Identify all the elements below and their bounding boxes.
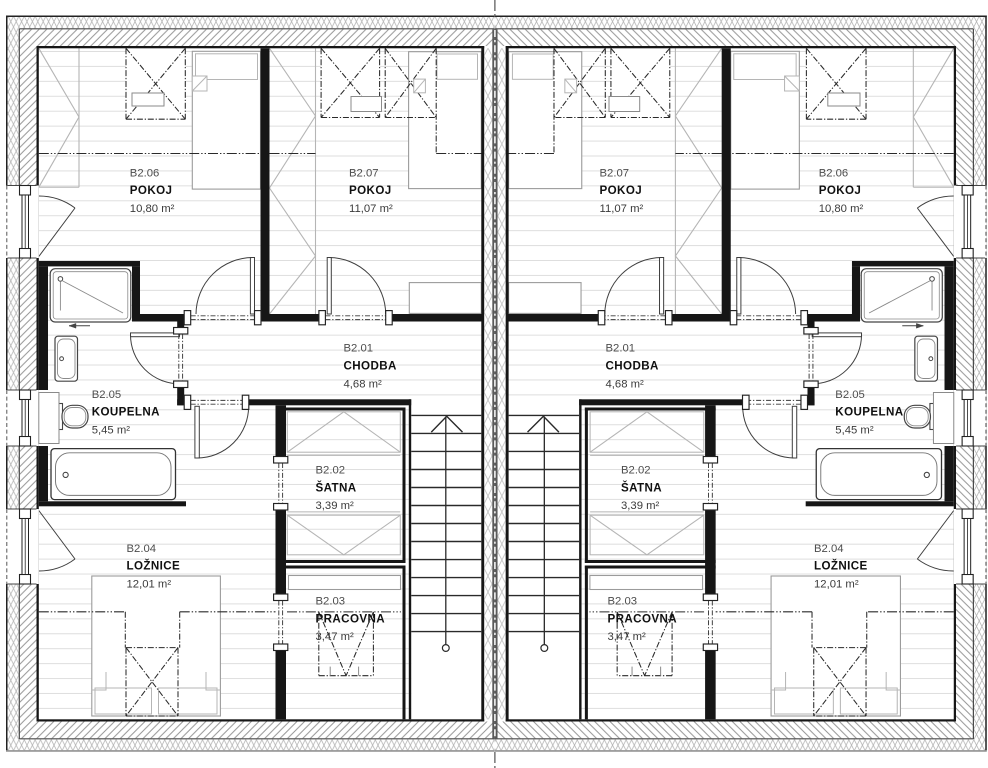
- svg-text:KOUPELNA: KOUPELNA: [835, 406, 903, 419]
- svg-text:PRACOVNA: PRACOVNA: [316, 612, 386, 625]
- svg-text:CHODBA: CHODBA: [344, 360, 398, 373]
- svg-text:B2.05: B2.05: [92, 389, 122, 401]
- svg-text:B2.01: B2.01: [344, 343, 374, 355]
- svg-text:POKOJ: POKOJ: [130, 184, 173, 197]
- svg-text:10,80 m²: 10,80 m²: [819, 203, 864, 215]
- svg-text:B2.06: B2.06: [130, 167, 160, 179]
- svg-text:B2.07: B2.07: [600, 167, 630, 179]
- svg-text:B2.07: B2.07: [349, 167, 379, 179]
- svg-text:LOŽNICE: LOŽNICE: [127, 560, 181, 573]
- svg-text:B2.03: B2.03: [316, 596, 346, 608]
- svg-text:B2.03: B2.03: [608, 596, 638, 608]
- svg-text:4,68 m²: 4,68 m²: [606, 378, 645, 390]
- svg-text:3,39 m²: 3,39 m²: [621, 500, 660, 512]
- svg-text:12,01 m²: 12,01 m²: [814, 578, 859, 590]
- svg-text:B2.02: B2.02: [316, 465, 346, 477]
- svg-text:ŠATNA: ŠATNA: [316, 481, 357, 494]
- svg-text:B2.04: B2.04: [814, 543, 844, 555]
- svg-text:CHODBA: CHODBA: [606, 360, 660, 373]
- svg-text:POKOJ: POKOJ: [349, 184, 392, 197]
- svg-text:B2.02: B2.02: [621, 465, 651, 477]
- svg-text:ŠATNA: ŠATNA: [621, 481, 662, 494]
- svg-text:10,80 m²: 10,80 m²: [130, 203, 175, 215]
- svg-text:KOUPELNA: KOUPELNA: [92, 406, 160, 419]
- svg-text:PRACOVNA: PRACOVNA: [608, 612, 678, 625]
- svg-text:4,68 m²: 4,68 m²: [344, 378, 383, 390]
- svg-text:B2.04: B2.04: [127, 543, 157, 555]
- svg-text:B2.05: B2.05: [835, 389, 865, 401]
- svg-text:3,39 m²: 3,39 m²: [316, 500, 355, 512]
- svg-text:POKOJ: POKOJ: [819, 184, 862, 197]
- svg-text:LOŽNICE: LOŽNICE: [814, 560, 868, 573]
- svg-text:12,01 m²: 12,01 m²: [127, 578, 172, 590]
- svg-text:5,45 m²: 5,45 m²: [92, 424, 131, 436]
- svg-text:5,45 m²: 5,45 m²: [835, 424, 874, 436]
- svg-text:3,47 m²: 3,47 m²: [316, 631, 355, 643]
- svg-text:POKOJ: POKOJ: [600, 184, 643, 197]
- svg-text:B2.06: B2.06: [819, 167, 849, 179]
- svg-text:11,07 m²: 11,07 m²: [600, 203, 644, 215]
- svg-text:3,47 m²: 3,47 m²: [608, 631, 647, 643]
- svg-text:B2.01: B2.01: [606, 343, 636, 355]
- svg-text:11,07 m²: 11,07 m²: [349, 203, 393, 215]
